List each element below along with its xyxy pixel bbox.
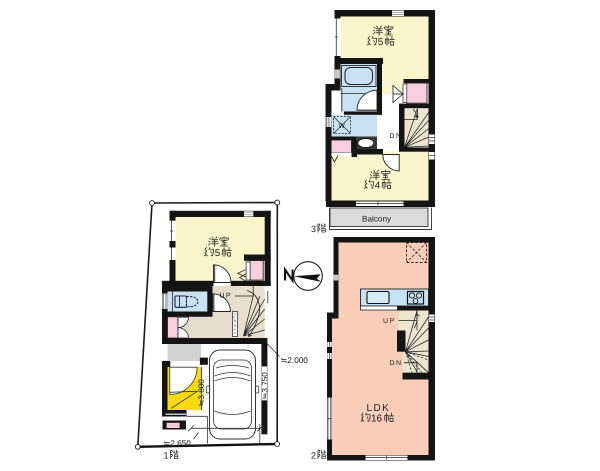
svg-text:UP: UP <box>220 293 233 300</box>
svg-text:2: 2 <box>311 451 316 461</box>
svg-text:UP: UP <box>383 318 396 325</box>
svg-text:≒2.000: ≒2.000 <box>281 356 309 365</box>
svg-text:≒3.750: ≒3.750 <box>261 372 270 400</box>
svg-text:DN: DN <box>390 133 403 140</box>
svg-text:DN: DN <box>390 360 403 367</box>
svg-text:4: 4 <box>375 181 381 192</box>
svg-text:5: 5 <box>215 248 221 259</box>
svg-text:5: 5 <box>378 37 384 48</box>
svg-text:≒3.800: ≒3.800 <box>197 379 206 407</box>
svg-text:16: 16 <box>371 414 383 425</box>
svg-text:3: 3 <box>311 224 316 234</box>
svg-text:1: 1 <box>164 451 169 461</box>
svg-text:W: W <box>339 123 346 130</box>
svg-text:Balcony: Balcony <box>362 215 392 224</box>
svg-text:LDK: LDK <box>367 403 391 414</box>
svg-text:≒2.650: ≒2.650 <box>164 439 192 448</box>
